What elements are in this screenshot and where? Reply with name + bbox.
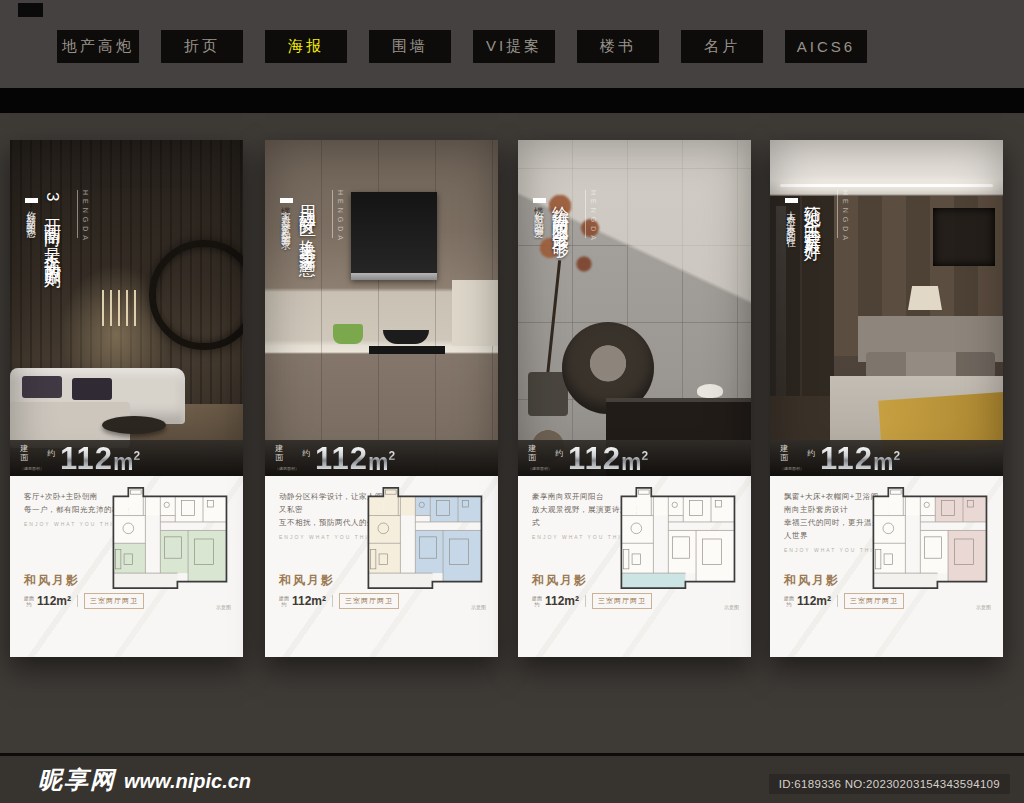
divider-strip <box>0 88 1024 113</box>
area-band-label: 建面 （建筑面积） <box>275 444 299 473</box>
area-band: 建面 （建筑面积） 约 112m2 <box>518 440 751 476</box>
area-band: 建面 （建筑面积） 约 112m2 <box>265 440 498 476</box>
unit-area-line: 建面约 112m² 三室两厅两卫 <box>279 593 399 609</box>
unit-area: 112m² <box>545 594 579 608</box>
category-tabs: 地产高炮 折页 海报 围墙 VI提案 楼书 名片 AICS6 <box>57 30 867 63</box>
brand-mark: HENGDA <box>337 190 344 244</box>
unit-name: 和风月影 <box>24 572 80 589</box>
corner-mark <box>18 3 43 17</box>
plan-note: 示意图 <box>471 604 486 610</box>
area-band: 建面 （建筑面积） 约 112m2 <box>10 440 243 476</box>
tab-billboard[interactable]: 地产高炮 <box>57 30 139 63</box>
brand-divider-line <box>77 190 78 238</box>
brand-mark: HENGDA <box>842 190 849 244</box>
plan-note: 示意图 <box>976 604 991 610</box>
tab-brochure[interactable]: 楼书 <box>577 30 659 63</box>
area-tiny-label: 建面约 <box>279 595 289 607</box>
photo-vignette <box>770 140 1003 476</box>
plan-note: 示意图 <box>724 604 739 610</box>
area-band-approx: 约 <box>302 448 310 459</box>
photo-vignette <box>518 140 751 476</box>
plan-note: 示意图 <box>216 604 231 610</box>
image-id-badge: ID:6189336 NO:20230203154343594109 <box>769 774 1010 794</box>
area-band: 建面 （建筑面积） 约 112m2 <box>770 440 1003 476</box>
area-value: 112m2 <box>820 443 900 474</box>
area-divider <box>332 595 333 607</box>
area-tiny-label: 建面约 <box>784 595 794 607</box>
area-divider <box>837 595 838 607</box>
unit-area: 112m² <box>292 594 326 608</box>
floor-plan <box>107 482 235 596</box>
floor-plan <box>867 482 995 596</box>
unit-type: 三室两厅两卫 <box>844 593 904 609</box>
poster-headline: 用动静分区换来全家满意 <box>296 192 319 250</box>
unit-name: 和风月影 <box>279 572 335 589</box>
poster-headline: 给她一个主卧套房好不好 <box>801 192 824 250</box>
unit-area: 112m² <box>797 594 831 608</box>
balcony-photo: 懂你对阳光的偏爱 给你南向双阳台够不够 HENGDA 建面 （建筑面积） 约 1… <box>518 140 751 476</box>
poster-info-sheet: 动静分区科学设计，让家人间亲密又私密 互不相扰，预防两代人的生活冲突 ENJOY… <box>265 476 498 657</box>
tab-aics6[interactable]: AICS6 <box>785 30 867 63</box>
poster-info-sheet: 客厅+次卧+主卧朝南 每一户，都有阳光充沛的极致体验 ENJOY WHAT YO… <box>10 476 243 657</box>
area-divider <box>77 595 78 607</box>
area-value: 112m2 <box>315 443 395 474</box>
area-band-note: （建筑面积） <box>780 464 804 473</box>
kitchen-photo: 懂家人对亲密又私密的要求 用动静分区换来全家满意 HENGDA 建面 （建筑面积… <box>265 140 498 476</box>
unit-area-line: 建面约 112m² 三室两厅两卫 <box>24 593 144 609</box>
bedroom-photo: 懂太太对二人世界的向往 给她一个主卧套房好不好 HENGDA 建面 （建筑面积）… <box>770 140 1003 476</box>
top-nav-bar: 地产高炮 折页 海报 围墙 VI提案 楼书 名片 AICS6 <box>0 0 1024 88</box>
area-band-label: 建面 （建筑面积） <box>20 444 44 473</box>
photo-vignette <box>10 140 243 476</box>
poster-headline: 给你南向双阳台够不够 <box>549 192 572 246</box>
area-tiny-label: 建面约 <box>24 595 34 607</box>
site-url: www.nipic.cn <box>124 770 251 792</box>
unit-type: 三室两厅两卫 <box>84 593 144 609</box>
area-band-note: （建筑面积） <box>20 464 44 473</box>
living-room-photo: 懂你对朝南的执念 3开间南向是不妥协的原则 HENGDA 建面 （建筑面积） 约… <box>10 140 243 476</box>
area-value: 112m2 <box>60 443 140 474</box>
tab-business-card[interactable]: 名片 <box>681 30 763 63</box>
poster-subheadline: 懂你对阳光的偏爱 <box>532 198 545 224</box>
area-divider <box>585 595 586 607</box>
poster-living-room: 懂你对朝南的执念 3开间南向是不妥协的原则 HENGDA 建面 （建筑面积） 约… <box>10 140 243 657</box>
poster-headline: 3开间南向是不妥协的原则 <box>41 192 64 263</box>
poster-info-sheet: 豪享南向双开间阳台 放大观景视野，展演更诗意生活方式 ENJOY WHAT YO… <box>518 476 751 657</box>
brand-divider-line <box>332 190 333 238</box>
area-band-note: （建筑面积） <box>275 464 299 473</box>
poster-info-sheet: 飘窗+大床+衣帽间+卫浴间 南向主卧套房设计 幸福三代的同时，更升温夫妻的二人世… <box>770 476 1003 657</box>
unit-name: 和风月影 <box>784 572 840 589</box>
poster-kitchen: 懂家人对亲密又私密的要求 用动静分区换来全家满意 HENGDA 建面 （建筑面积… <box>265 140 498 657</box>
site-name: 昵享网 <box>38 766 116 793</box>
area-band-label: 建面 （建筑面积） <box>528 444 552 473</box>
tab-wall[interactable]: 围墙 <box>369 30 451 63</box>
unit-type: 三室两厅两卫 <box>592 593 652 609</box>
unit-type: 三室两厅两卫 <box>339 593 399 609</box>
unit-area-line: 建面约 112m² 三室两厅两卫 <box>532 593 652 609</box>
area-band-label: 建面 （建筑面积） <box>780 444 804 473</box>
tab-folding[interactable]: 折页 <box>161 30 243 63</box>
area-band-approx: 约 <box>47 448 55 459</box>
poster-subheadline: 懂你对朝南的执念 <box>24 198 37 224</box>
floor-plan <box>615 482 743 596</box>
watermark-bar: 昵享网www.nipic.cn ID:6189336 NO:2023020315… <box>0 753 1024 803</box>
tab-vi-proposal[interactable]: VI提案 <box>473 30 555 63</box>
area-band-approx: 约 <box>807 448 815 459</box>
photo-vignette <box>265 140 498 476</box>
poster-bedroom: 懂太太对二人世界的向往 给她一个主卧套房好不好 HENGDA 建面 （建筑面积）… <box>770 140 1003 657</box>
area-band-note: （建筑面积） <box>528 464 552 473</box>
poster-balcony: 懂你对阳光的偏爱 给你南向双阳台够不够 HENGDA 建面 （建筑面积） 约 1… <box>518 140 751 657</box>
area-tiny-label: 建面约 <box>532 595 542 607</box>
site-watermark: 昵享网www.nipic.cn <box>38 764 251 796</box>
brand-divider-line <box>837 190 838 238</box>
unit-area-line: 建面约 112m² 三室两厅两卫 <box>784 593 904 609</box>
tab-poster-active[interactable]: 海报 <box>265 30 347 63</box>
floor-plan <box>362 482 490 596</box>
brand-mark: HENGDA <box>82 190 89 244</box>
poster-subheadline: 懂家人对亲密又私密的要求 <box>279 198 292 236</box>
unit-name: 和风月影 <box>532 572 588 589</box>
brand-divider-line <box>585 190 586 238</box>
brand-mark: HENGDA <box>590 190 597 244</box>
poster-subheadline: 懂太太对二人世界的向往 <box>784 198 797 233</box>
area-band-approx: 约 <box>555 448 563 459</box>
unit-area: 112m² <box>37 594 71 608</box>
area-value: 112m2 <box>568 443 648 474</box>
